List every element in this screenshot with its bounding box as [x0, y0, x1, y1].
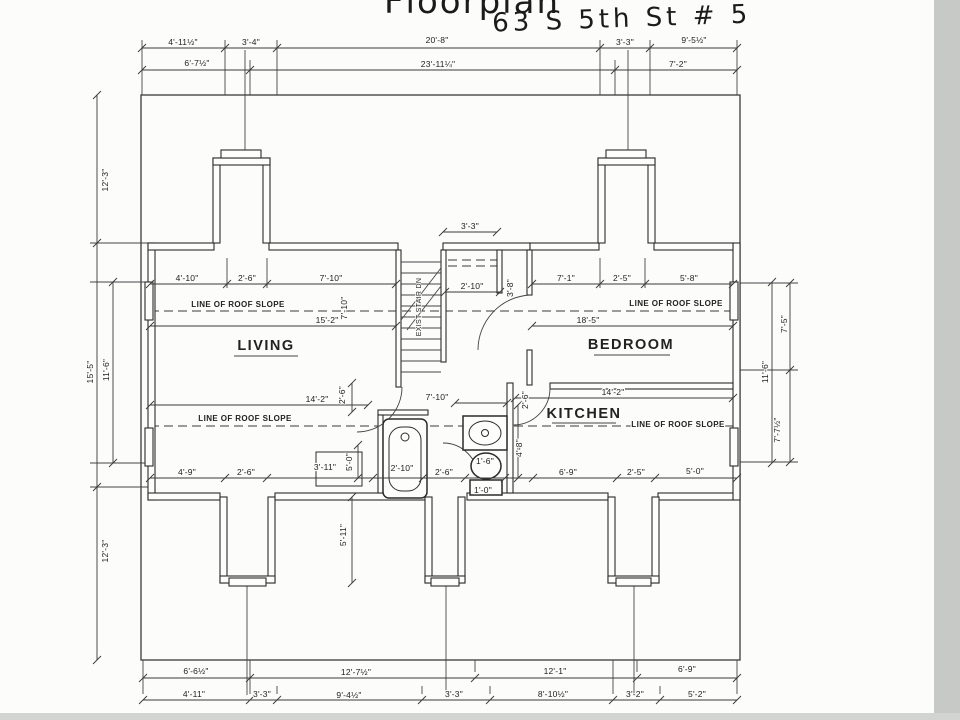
dimension-label: 2'-6"	[238, 273, 256, 283]
dimension-label: 3'-2"	[626, 689, 644, 699]
dimension-label: 5'-0"	[686, 466, 704, 476]
dimension-label: 14'-2"	[306, 394, 329, 404]
dimension-label: 7'-10"	[320, 273, 343, 283]
window	[730, 282, 738, 320]
bottom-dormer-right	[608, 497, 659, 586]
dimension-line	[786, 279, 794, 466]
dimension-label: 2'-10"	[391, 463, 414, 473]
scan-edge-bottom	[0, 713, 960, 720]
dimension-label: 20'-8"	[426, 35, 449, 45]
dimension-label: 5'-8"	[680, 273, 698, 283]
dimension-label: 3'-3"	[616, 37, 634, 47]
dimension-label: 11'-6"	[101, 359, 111, 381]
bathtub-icon	[383, 419, 427, 498]
dimension-label: 6'-6½"	[183, 666, 208, 676]
roof-slope-label: LINE OF ROOF SLOPE	[629, 299, 723, 308]
dimension-label: 3'-11"	[314, 462, 336, 472]
sink-icon	[463, 416, 507, 450]
dormer-window	[606, 150, 646, 158]
dimension-line	[354, 441, 362, 482]
dimension-label: 3'-3"	[253, 689, 271, 699]
dimension-label: 2'-5"	[613, 273, 631, 283]
dimension-label: 3'-3"	[461, 221, 479, 231]
dimension-label: 9'-5½"	[681, 35, 706, 45]
dormer-window	[616, 578, 651, 586]
dimension-label: 3'-8"	[505, 279, 515, 297]
dimension-label: 12'-3"	[100, 169, 110, 192]
dimension-label: 14'-2"	[602, 387, 625, 397]
bottom-dormer-middle	[425, 497, 465, 586]
window	[730, 428, 738, 466]
floorplan-drawing: Floorplan63 S 5th St # 54'-11½"3'-4"20'-…	[0, 0, 960, 720]
dimension-label: 6'-9"	[559, 467, 577, 477]
dimension-label: 5'-11"	[338, 524, 348, 546]
dimension-label: 8'-10½"	[538, 689, 568, 699]
dimension-label: 7'-5"	[779, 315, 789, 333]
dimension-line	[138, 44, 741, 52]
dormer-window	[431, 578, 459, 586]
dimension-label: 7'-10"	[339, 297, 349, 320]
dimension-label: 9'-4½"	[336, 690, 361, 700]
roof-slope-label: LINE OF ROOF SLOPE	[631, 420, 725, 429]
room-label-kitchen: KITCHEN	[547, 406, 622, 422]
dimension-line	[146, 322, 400, 330]
dimension-line	[528, 322, 737, 330]
dimension-label: 2'-10"	[461, 281, 484, 291]
dimension-line	[139, 674, 741, 682]
dimension-label: 4'-11"	[183, 689, 205, 699]
bottom-dormer-left	[220, 497, 275, 586]
roof-slope-label: LINE OF ROOF SLOPE	[198, 414, 292, 423]
dimension-label: 6'-7½"	[184, 58, 209, 68]
dimension-label: 3'-3"	[445, 689, 463, 699]
door-arc	[513, 388, 550, 425]
stair-label: EXIST STAIR DN	[416, 278, 423, 336]
roof-slope-label: LINE OF ROOF SLOPE	[191, 300, 285, 309]
dimension-label: 12'-1"	[544, 666, 567, 676]
dimension-label: 2'-5"	[627, 467, 645, 477]
dimension-label: 7'-7½"	[772, 417, 782, 442]
dimension-label: 7'-1"	[557, 273, 575, 283]
dimension-label: 12'-3"	[100, 540, 110, 563]
dimension-label: 2'-6"	[337, 386, 347, 404]
dormer-window	[221, 150, 261, 158]
dimension-line	[348, 493, 356, 587]
dimension-line	[451, 399, 511, 407]
dimension-label: 15'-2"	[316, 315, 339, 325]
room-label-bedroom: BEDROOM	[588, 337, 674, 353]
dimension-line	[139, 696, 741, 704]
scanned-floorplan-page: Floorplan63 S 5th St # 54'-11½"3'-4"20'-…	[0, 0, 960, 720]
extension-lines	[90, 40, 798, 695]
window	[145, 428, 153, 466]
top-dormer-right	[598, 150, 655, 243]
dimension-label: 4'-8"	[514, 439, 524, 457]
dimension-label: 2'-6"	[237, 467, 255, 477]
room-label-living: LIVING	[237, 338, 294, 354]
dimension-label: 1'-6"	[476, 456, 494, 466]
dormer-window	[229, 578, 266, 586]
dimension-label: 6'-9"	[678, 664, 696, 674]
dimension-label: 11'-6"	[760, 361, 770, 383]
dimension-label: 2'-6"	[520, 391, 530, 409]
dimension-lines	[93, 44, 794, 704]
dimension-line	[348, 379, 356, 416]
scan-edge-right	[934, 0, 960, 720]
interior-walls	[378, 250, 733, 493]
dimension-label: 15'-5"	[85, 361, 95, 384]
dimension-label: 4'-11½"	[168, 37, 198, 47]
dimension-label: 1'-0"	[474, 485, 492, 495]
dimension-label: 7'-10"	[426, 392, 449, 402]
dimension-label: 7'-2"	[669, 59, 687, 69]
dimension-label: 3'-4"	[242, 37, 260, 47]
dimension-label: 18'-5"	[577, 315, 600, 325]
dimension-label: 4'-9"	[178, 467, 196, 477]
dimension-label: 5'-0"	[344, 453, 354, 471]
dimension-label: 5'-2"	[688, 689, 706, 699]
dimension-label: 23'-11¼"	[421, 59, 455, 69]
door-arc	[478, 295, 530, 350]
dimension-label: 2'-6"	[435, 467, 453, 477]
dimension-label: 4'-10"	[176, 273, 199, 283]
dimension-label: 12'-7½"	[341, 667, 371, 677]
top-dormer-left	[213, 150, 270, 243]
